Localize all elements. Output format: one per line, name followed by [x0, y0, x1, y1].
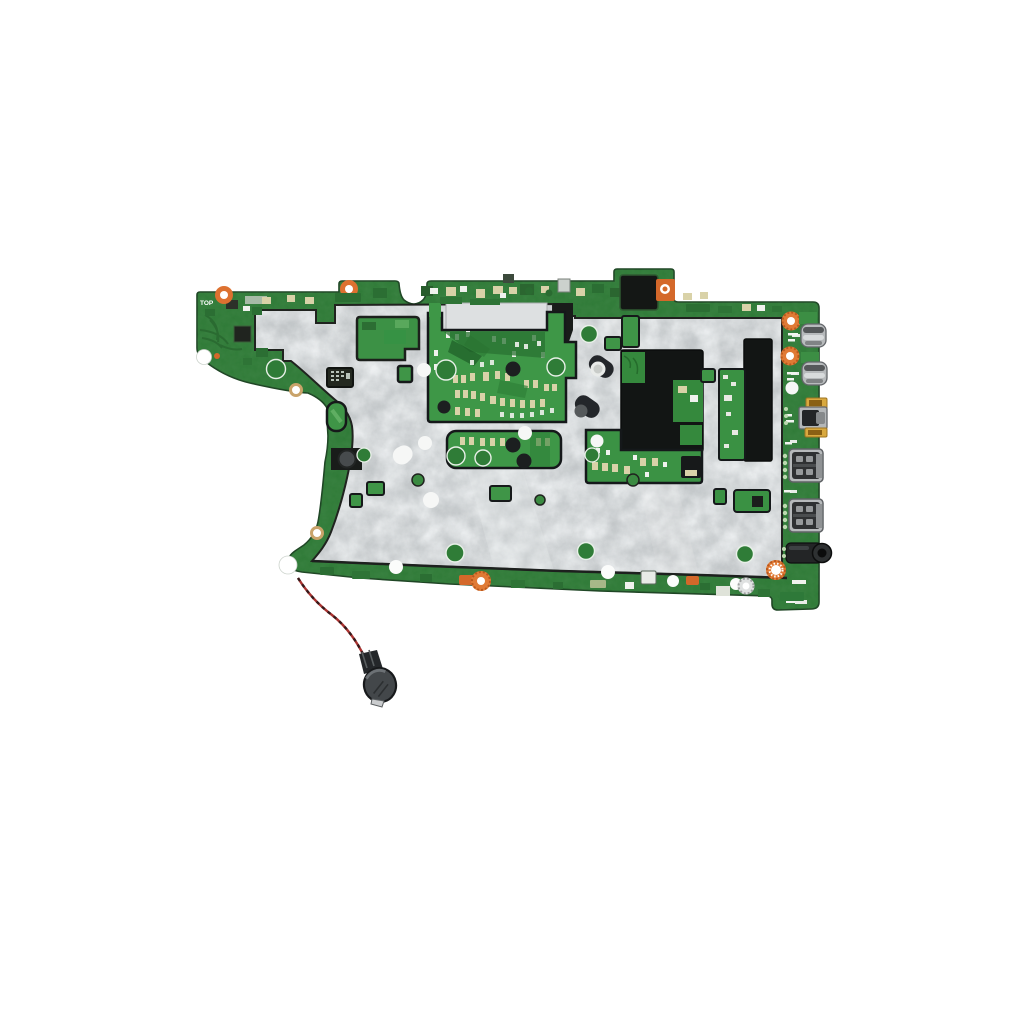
svg-text:TOP: TOP [200, 300, 214, 307]
